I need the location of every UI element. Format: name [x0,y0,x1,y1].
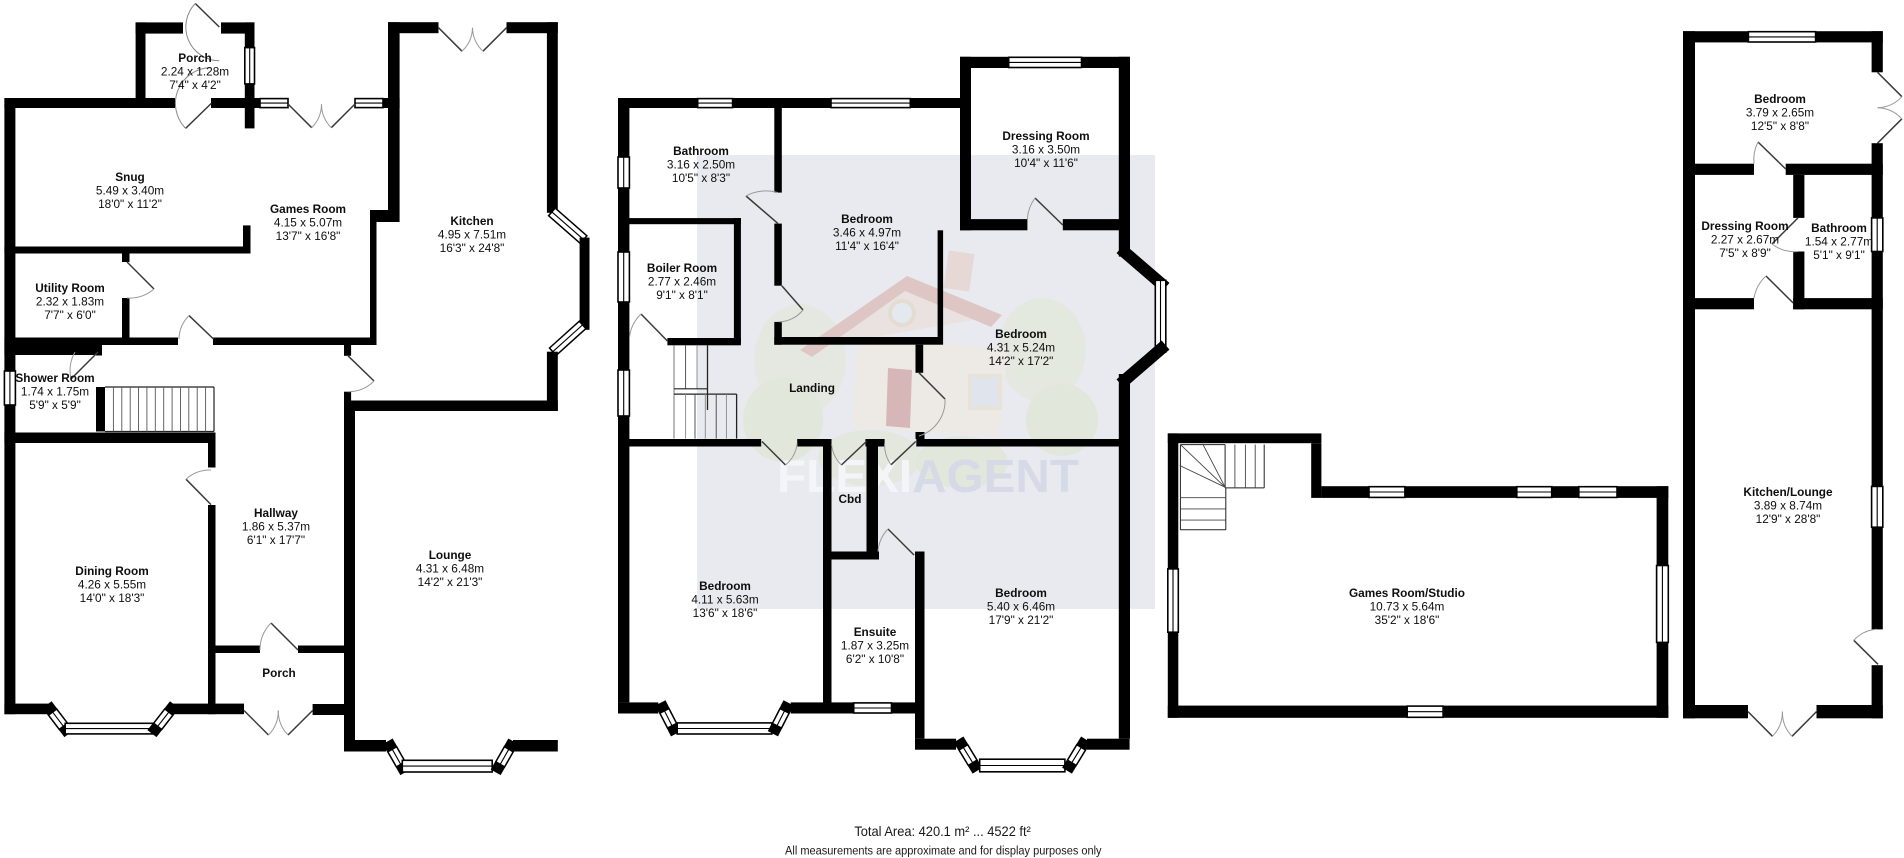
svg-text:3.16 x 2.50m: 3.16 x 2.50m [667,158,735,172]
svg-text:17'9" x 21'2": 17'9" x 21'2" [989,613,1054,627]
svg-text:Dressing Room: Dressing Room [1002,129,1089,143]
svg-text:14'2" x 21'3": 14'2" x 21'3" [418,575,483,589]
svg-text:4.31 x 6.48m: 4.31 x 6.48m [416,562,484,576]
svg-text:Porch: Porch [178,51,211,65]
svg-text:12'9" x 28'8": 12'9" x 28'8" [1756,512,1821,526]
svg-text:Bedroom: Bedroom [699,579,751,593]
svg-text:Landing: Landing [789,381,835,395]
svg-text:13'7" x 16'8": 13'7" x 16'8" [276,229,341,243]
svg-text:Bedroom: Bedroom [995,327,1047,341]
svg-text:7'7" x 6'0": 7'7" x 6'0" [44,308,96,322]
svg-text:4.31 x 5.24m: 4.31 x 5.24m [987,341,1055,355]
svg-text:Bedroom: Bedroom [1754,92,1806,106]
svg-text:11'4" x 16'4": 11'4" x 16'4" [835,239,899,253]
svg-text:5.49 x 3.40m: 5.49 x 3.40m [96,184,164,198]
svg-text:10'4" x 11'6": 10'4" x 11'6" [1014,156,1078,170]
svg-text:FLEXIAGENT: FLEXIAGENT [777,450,1079,502]
svg-text:Kitchen/Lounge: Kitchen/Lounge [1743,485,1833,499]
svg-text:Boiler Room: Boiler Room [647,261,717,275]
svg-text:Dressing Room: Dressing Room [1701,219,1788,233]
svg-text:4.11 x 5.63m: 4.11 x 5.63m [691,593,758,607]
svg-text:Hallway: Hallway [254,506,298,520]
svg-text:2.27 x 2.67m: 2.27 x 2.67m [1711,233,1779,247]
svg-text:Cbd: Cbd [839,492,862,506]
svg-text:1.86 x 5.37m: 1.86 x 5.37m [242,520,310,534]
svg-text:5'9" x 5'9": 5'9" x 5'9" [29,398,81,412]
svg-text:4.95 x 7.51m: 4.95 x 7.51m [438,228,506,242]
svg-text:All measurements are approxima: All measurements are approximate and for… [785,844,1102,858]
svg-text:14'0" x 18'3": 14'0" x 18'3" [80,591,145,605]
svg-text:4.15 x 5.07m: 4.15 x 5.07m [274,216,342,230]
svg-text:6'1" x 17'7": 6'1" x 17'7" [247,533,305,547]
svg-text:35'2" x 18'6": 35'2" x 18'6" [1375,613,1440,627]
svg-text:2.77 x 2.46m: 2.77 x 2.46m [648,275,716,289]
svg-text:3.79 x 2.65m: 3.79 x 2.65m [1746,106,1814,120]
svg-text:5.40 x 6.46m: 5.40 x 6.46m [987,600,1055,614]
svg-text:6'2" x 10'8": 6'2" x 10'8" [846,652,904,666]
svg-text:10'5" x 8'3": 10'5" x 8'3" [672,171,730,185]
svg-text:3.46 x 4.97m: 3.46 x 4.97m [833,226,901,240]
svg-text:1.74 x 1.75m: 1.74 x 1.75m [21,385,89,399]
svg-text:2.32 x 1.83m: 2.32 x 1.83m [36,295,104,309]
svg-text:12'5" x 8'8": 12'5" x 8'8" [1751,119,1809,133]
svg-text:5'1" x 9'1": 5'1" x 9'1" [1813,248,1865,262]
svg-text:16'3" x 24'8": 16'3" x 24'8" [440,241,505,255]
svg-text:9'1" x 8'1": 9'1" x 8'1" [656,288,708,302]
svg-text:Snug: Snug [115,170,145,184]
svg-text:Porch: Porch [262,666,295,680]
svg-text:14'2" x 17'2": 14'2" x 17'2" [989,354,1054,368]
svg-text:3.16 x 3.50m: 3.16 x 3.50m [1012,143,1080,157]
svg-text:Dining Room: Dining Room [75,564,148,578]
svg-text:Ensuite: Ensuite [854,625,897,639]
svg-text:4.26 x 5.55m: 4.26 x 5.55m [78,578,146,592]
svg-text:2.24 x 1.28m: 2.24 x 1.28m [161,65,229,79]
svg-text:13'6" x 18'6": 13'6" x 18'6" [693,606,758,620]
svg-text:7'5" x 8'9": 7'5" x 8'9" [1719,246,1771,260]
svg-text:7'4" x 4'2": 7'4" x 4'2" [169,78,221,92]
svg-text:Shower Room: Shower Room [15,371,94,385]
svg-text:Games Room: Games Room [270,202,346,216]
svg-text:Bathroom: Bathroom [1811,221,1867,235]
svg-text:Lounge: Lounge [429,548,472,562]
svg-text:Bedroom: Bedroom [995,586,1047,600]
svg-text:Kitchen: Kitchen [450,214,493,228]
svg-text:3.89 x 8.74m: 3.89 x 8.74m [1754,499,1822,513]
svg-text:10.73 x 5.64m: 10.73 x 5.64m [1370,600,1445,614]
svg-text:Utility Room: Utility Room [35,281,104,295]
svg-text:1.54 x 2.77m: 1.54 x 2.77m [1805,235,1873,249]
svg-text:Total Area: 420.1 m² ... 4522: Total Area: 420.1 m² ... 4522 ft² [854,823,1031,839]
svg-text:1.87 x 3.25m: 1.87 x 3.25m [841,639,909,653]
svg-text:Bedroom: Bedroom [841,212,893,226]
svg-text:18'0" x 11'2": 18'0" x 11'2" [98,197,162,211]
svg-text:Games Room/Studio: Games Room/Studio [1349,586,1465,600]
svg-text:Bathroom: Bathroom [673,144,729,158]
